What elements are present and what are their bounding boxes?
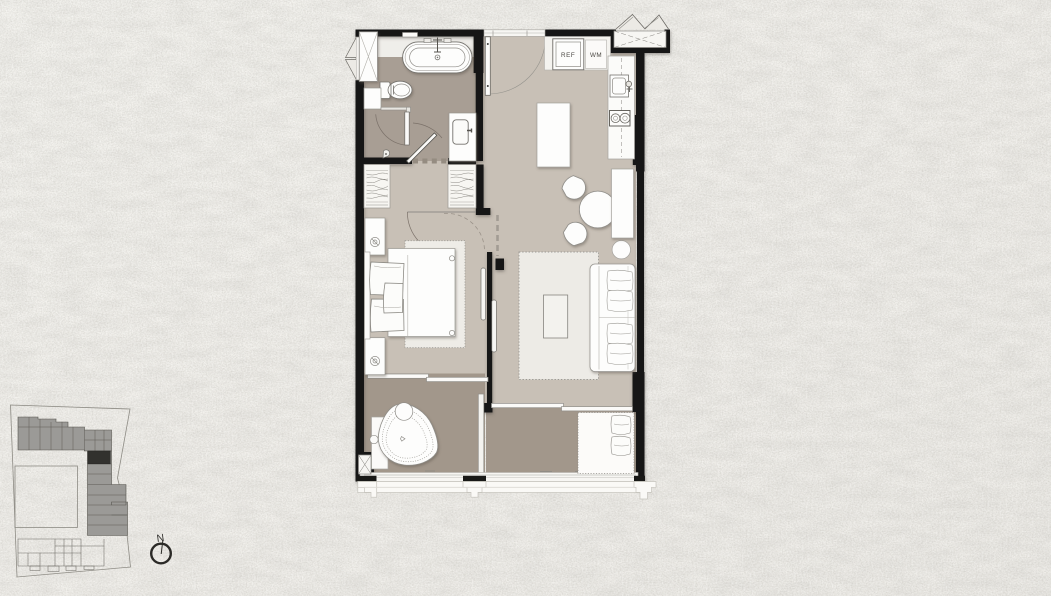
svg-text:WM: WM (590, 52, 602, 59)
svg-text:REF: REF (561, 52, 575, 59)
